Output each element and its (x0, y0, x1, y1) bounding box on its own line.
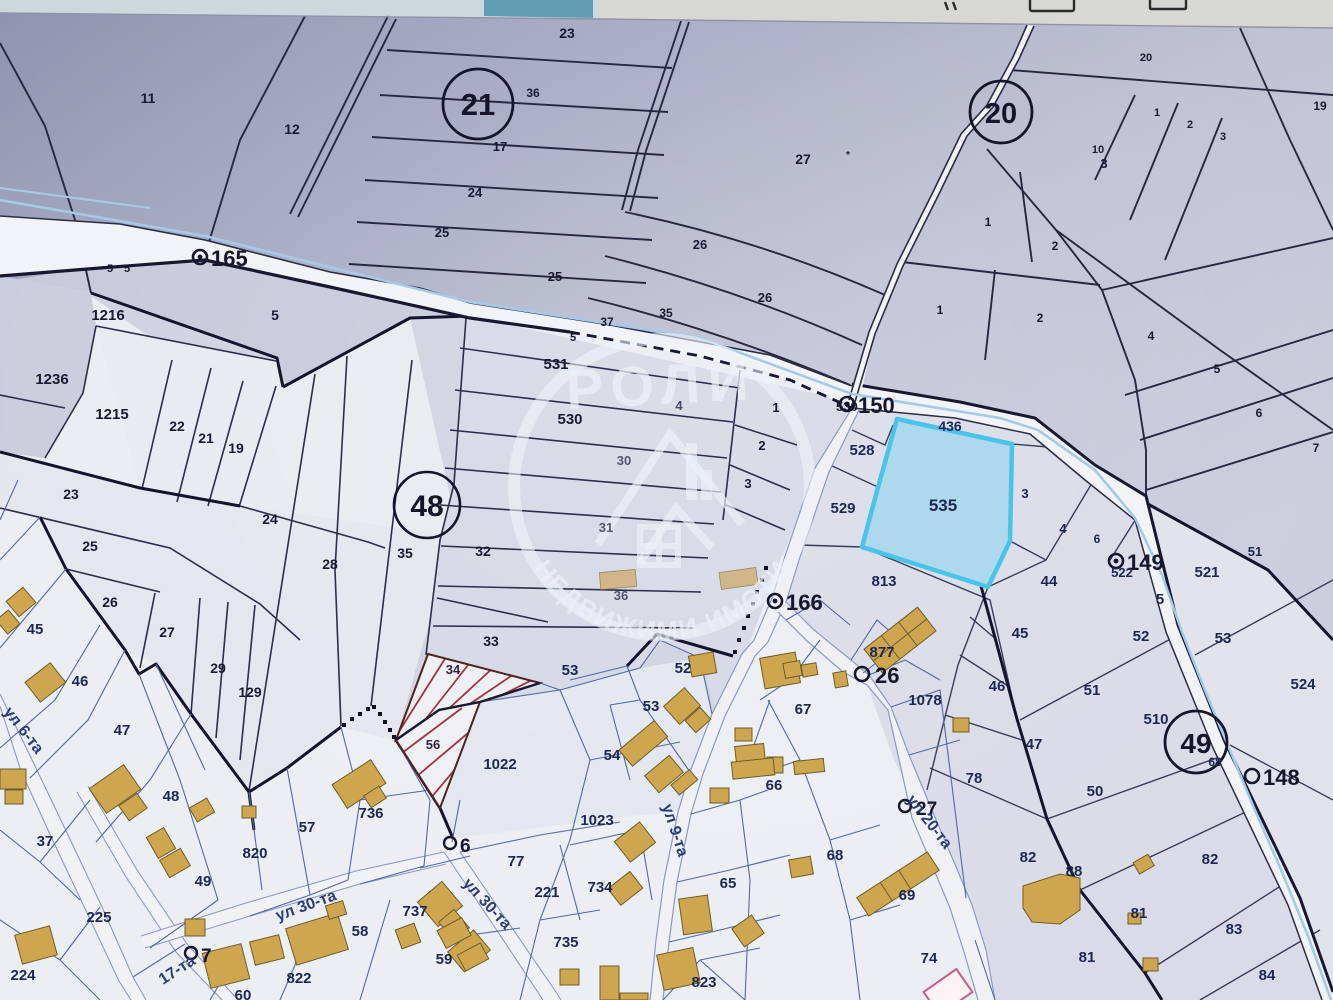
svg-text:522: 522 (1111, 565, 1133, 580)
svg-text:148: 148 (1263, 765, 1300, 790)
svg-text:737: 737 (402, 903, 427, 920)
svg-text:66: 66 (766, 777, 783, 794)
svg-text:17: 17 (493, 139, 507, 154)
svg-text:19: 19 (228, 440, 244, 456)
svg-text:21: 21 (461, 87, 495, 122)
svg-text:24: 24 (262, 511, 278, 527)
svg-text:35: 35 (397, 545, 413, 561)
svg-text:84: 84 (1259, 967, 1276, 984)
svg-text:83: 83 (1226, 921, 1243, 938)
svg-text:1215: 1215 (95, 406, 128, 423)
svg-text:1: 1 (772, 400, 779, 415)
svg-text:1216: 1216 (91, 307, 124, 324)
svg-text:74: 74 (921, 950, 938, 967)
svg-text:524: 524 (1290, 676, 1316, 693)
svg-text:10: 10 (1092, 144, 1104, 156)
svg-text:20: 20 (985, 98, 1017, 130)
svg-text:3: 3 (1220, 131, 1226, 143)
svg-text:*: * (846, 150, 850, 161)
svg-text:4: 4 (675, 398, 683, 413)
svg-text:33: 33 (483, 633, 499, 649)
svg-text:26: 26 (693, 237, 707, 252)
svg-text:3: 3 (1021, 486, 1028, 501)
svg-text:36: 36 (614, 588, 628, 603)
svg-text:166: 166 (786, 590, 823, 615)
svg-text:22: 22 (169, 418, 185, 434)
svg-text:5: 5 (271, 307, 279, 323)
svg-text:150: 150 (858, 393, 895, 418)
svg-text:53: 53 (562, 662, 579, 679)
svg-text:51: 51 (1248, 544, 1262, 559)
svg-text:51: 51 (1084, 682, 1101, 699)
svg-text:7: 7 (201, 946, 212, 967)
svg-text:165: 165 (211, 246, 248, 271)
svg-text:47: 47 (114, 722, 131, 739)
svg-text:27: 27 (795, 151, 811, 167)
svg-text:530: 530 (557, 411, 582, 428)
svg-text:82: 82 (1202, 851, 1219, 868)
svg-text:6: 6 (1256, 406, 1263, 420)
svg-text:3: 3 (1100, 156, 1107, 171)
svg-text:46: 46 (989, 678, 1006, 695)
svg-text:26: 26 (102, 594, 118, 610)
svg-text:26: 26 (758, 290, 772, 305)
svg-text:88: 88 (1066, 863, 1083, 880)
svg-text:813: 813 (871, 573, 896, 590)
svg-text:820: 820 (242, 845, 267, 862)
svg-text:19: 19 (1313, 99, 1327, 113)
svg-text:23: 23 (559, 25, 575, 41)
svg-text:26: 26 (875, 663, 899, 688)
svg-text:44: 44 (1041, 573, 1058, 590)
svg-text:822: 822 (286, 970, 311, 987)
svg-text:735: 735 (553, 934, 578, 951)
svg-text:2: 2 (1037, 311, 1044, 325)
svg-text:5: 5 (1214, 362, 1221, 376)
svg-text:60: 60 (235, 987, 252, 1000)
svg-text:31: 31 (599, 520, 613, 535)
svg-text:734: 734 (587, 879, 613, 896)
svg-text:30: 30 (617, 453, 631, 468)
svg-text:823: 823 (691, 974, 716, 991)
svg-text:54: 54 (604, 747, 621, 764)
svg-text:РОЛИ: РОЛИ (564, 348, 757, 421)
svg-text:52: 52 (675, 660, 692, 677)
svg-text:45: 45 (1012, 625, 1029, 642)
svg-text:52: 52 (1133, 628, 1150, 645)
svg-text:58: 58 (352, 923, 369, 940)
svg-text:37: 37 (37, 833, 54, 850)
svg-text:528: 528 (849, 442, 874, 459)
svg-text:36: 36 (526, 86, 540, 100)
svg-text:736: 736 (358, 805, 383, 822)
svg-text:45: 45 (27, 621, 44, 638)
svg-text:521: 521 (1194, 564, 1219, 581)
svg-text:25: 25 (82, 538, 98, 554)
svg-text:28: 28 (322, 556, 338, 572)
svg-text:529: 529 (830, 500, 855, 517)
svg-text:5: 5 (107, 263, 113, 275)
svg-text:1023: 1023 (580, 812, 613, 829)
svg-text:37: 37 (600, 315, 614, 329)
svg-text:77: 77 (508, 853, 525, 870)
svg-text:6: 6 (1094, 532, 1101, 546)
svg-text:21: 21 (198, 430, 214, 446)
svg-text:531: 531 (543, 356, 568, 373)
svg-text:4: 4 (1148, 329, 1155, 343)
svg-text:224: 224 (10, 967, 36, 984)
svg-text:20: 20 (1140, 52, 1152, 64)
svg-text:221: 221 (534, 884, 559, 901)
svg-text:23: 23 (63, 486, 79, 502)
svg-text:68: 68 (827, 847, 844, 864)
svg-text:1: 1 (985, 215, 992, 229)
svg-text:24: 24 (468, 185, 483, 200)
svg-text:69: 69 (899, 887, 916, 904)
svg-text:1078: 1078 (908, 692, 941, 709)
svg-text:1: 1 (937, 303, 944, 317)
svg-text:2: 2 (1187, 119, 1193, 131)
svg-text:1022: 1022 (483, 756, 516, 773)
svg-text:53: 53 (1215, 630, 1232, 647)
svg-text:56: 56 (426, 737, 440, 752)
svg-text:29: 29 (210, 660, 226, 676)
svg-text:50: 50 (1087, 783, 1104, 800)
svg-text:11: 11 (141, 90, 156, 106)
svg-text:6: 6 (460, 836, 471, 857)
svg-text:5: 5 (570, 332, 576, 344)
svg-text:5: 5 (124, 263, 130, 275)
svg-text:57: 57 (299, 819, 316, 836)
svg-text:510: 510 (1143, 711, 1168, 728)
svg-text:48: 48 (410, 490, 443, 523)
svg-text:530: 530 (836, 399, 858, 414)
svg-text:32: 32 (475, 543, 491, 559)
svg-text:12: 12 (284, 121, 300, 137)
svg-text:5: 5 (1156, 591, 1164, 608)
svg-text:68: 68 (1208, 755, 1222, 769)
svg-text:81: 81 (1131, 905, 1148, 922)
svg-text:78: 78 (966, 770, 983, 787)
svg-text:34: 34 (446, 662, 461, 677)
svg-text:67: 67 (795, 701, 812, 718)
svg-text:49: 49 (1180, 728, 1211, 759)
svg-text:49: 49 (195, 873, 212, 890)
svg-text:129: 129 (238, 684, 262, 700)
svg-text:25: 25 (548, 269, 562, 284)
svg-text:53: 53 (643, 698, 660, 715)
svg-text:59: 59 (436, 951, 453, 968)
svg-text:7: 7 (1313, 441, 1320, 455)
svg-text:3: 3 (744, 476, 751, 491)
svg-text:81: 81 (1079, 949, 1096, 966)
svg-text:2: 2 (758, 438, 765, 453)
svg-text:46: 46 (72, 673, 89, 690)
svg-text:4: 4 (1059, 521, 1067, 536)
svg-text:225: 225 (86, 909, 111, 926)
svg-text:35: 35 (659, 306, 673, 320)
svg-text:47: 47 (1026, 736, 1043, 753)
svg-text:2: 2 (1052, 239, 1059, 253)
svg-text:82: 82 (1020, 849, 1037, 866)
svg-text:436: 436 (938, 418, 962, 434)
svg-text:48: 48 (163, 788, 180, 805)
svg-text:1: 1 (1154, 107, 1160, 119)
svg-text:25: 25 (435, 225, 449, 240)
svg-text:1236: 1236 (35, 371, 68, 388)
svg-text:877: 877 (869, 644, 894, 661)
svg-text:65: 65 (720, 875, 737, 892)
svg-text:27: 27 (159, 624, 175, 640)
svg-text:535: 535 (929, 496, 957, 515)
